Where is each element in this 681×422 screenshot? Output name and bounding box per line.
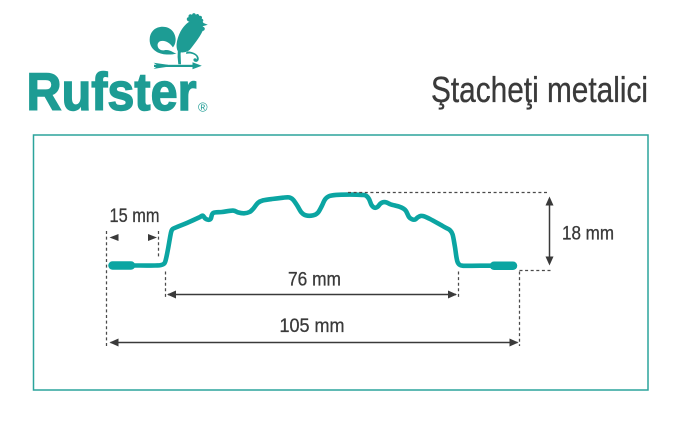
svg-text:®: ® bbox=[198, 100, 208, 115]
svg-text:18 mm: 18 mm bbox=[562, 224, 614, 245]
svg-text:Ştacheţi metalici: Ştacheţi metalici bbox=[431, 69, 648, 110]
svg-text:76 mm: 76 mm bbox=[288, 270, 341, 291]
svg-text:15 mm: 15 mm bbox=[110, 206, 160, 227]
svg-text:Rufster: Rufster bbox=[27, 63, 197, 122]
svg-text:105 mm: 105 mm bbox=[280, 316, 345, 337]
